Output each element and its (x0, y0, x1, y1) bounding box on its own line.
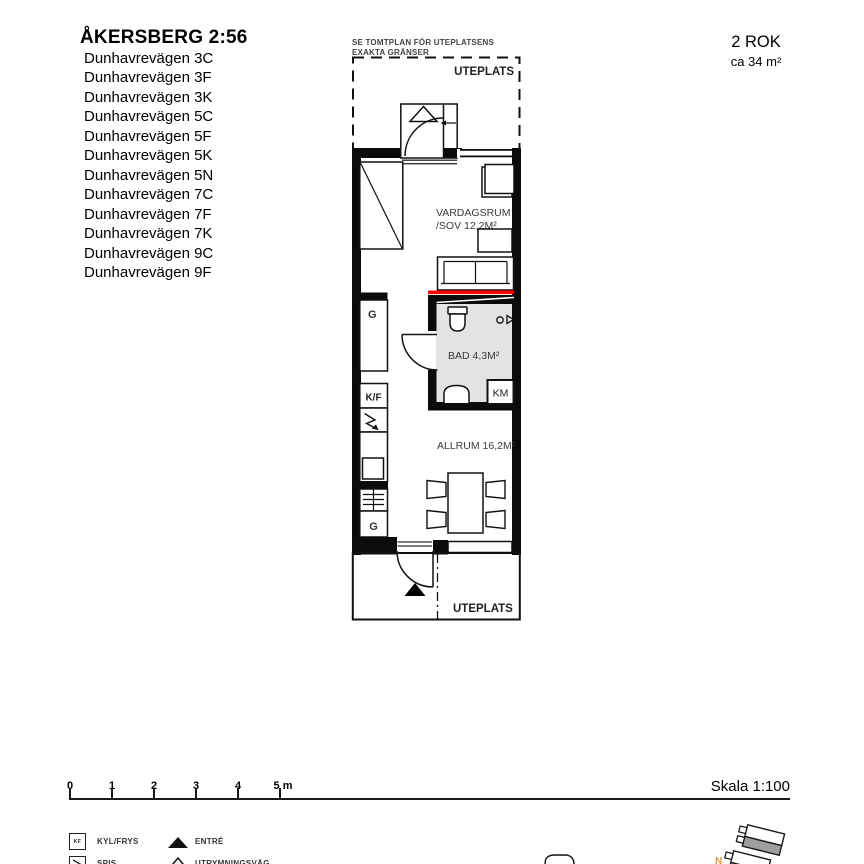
closet-lower: G (360, 511, 388, 537)
fridge-freezer: K/F (360, 384, 388, 409)
scale-tick-label: 1 (99, 780, 125, 792)
coffee-table (478, 229, 512, 252)
address-item: Dunhavrevägen 7K (84, 224, 213, 243)
scale-bar-line (70, 798, 790, 800)
address-item: Dunhavrevägen 5F (84, 127, 213, 146)
dishwasher (360, 489, 388, 511)
legend-label-entre: ENTRÉ (195, 837, 224, 846)
site-note-line1: SE TOMTPLAN FÖR UTEPLATSENS (352, 38, 494, 47)
bathroom-door (402, 335, 438, 371)
address-item: Dunhavrevägen 5N (84, 166, 213, 185)
apartment-area: ca 34 m² (706, 54, 806, 69)
kylfrys-icon-text: KF (74, 839, 82, 845)
address-item: Dunhavrevägen 7F (84, 205, 213, 224)
floorplan-page: ÅKERSBERG 2:56 Dunhavrevägen 3C Dunhavre… (0, 0, 864, 864)
kylfrys-icon: KF (69, 833, 86, 850)
apartment-type: 2 ROK (706, 33, 806, 52)
floor-plan: SE TOMTPLAN FÖR UTEPLATSENS EXAKTA GRÄNS… (335, 30, 535, 630)
fridge-label: K/F (365, 393, 381, 404)
legend-label-utrymningsvag: UTRYMNINGSVÄG (195, 859, 270, 864)
address-item: Dunhavrevägen 5K (84, 146, 213, 165)
scale-tick-label: 4 (225, 780, 251, 792)
closet-lower-label: G (369, 521, 378, 533)
entry-door (397, 551, 433, 587)
page-title: ÅKERSBERG 2:56 (80, 27, 248, 49)
scale-tick-label: 5 m (270, 780, 296, 792)
km-label: KM (493, 388, 509, 400)
uteplats-bottom-label: UTEPLATS (453, 603, 513, 615)
closet-upper: G (360, 300, 388, 371)
vardagsrum-label-line1: VARDAGSRUM (436, 207, 510, 219)
chair (486, 481, 505, 499)
address-list: Dunhavrevägen 3C Dunhavrevägen 3F Dunhav… (84, 49, 213, 282)
washing-machine: KM (488, 380, 514, 404)
interior-wall (352, 481, 388, 489)
scale-tick-label: 3 (183, 780, 209, 792)
site-plan-thumbnail: N (540, 818, 864, 864)
stove (360, 408, 388, 432)
legend-label-kylfrys: KYL/FRYS (97, 837, 139, 846)
chair (486, 511, 505, 529)
address-item: Dunhavrevägen 7C (84, 185, 213, 204)
site-note-line2: EXAKTA GRÄNSER (352, 48, 429, 57)
bad-label: BAD 4,3M² (448, 350, 500, 362)
bed (360, 162, 403, 249)
sink-icon (444, 386, 469, 404)
dining-table-set (427, 473, 505, 533)
address-item: Dunhavrevägen 3F (84, 68, 213, 87)
legend-label-spis: SPIS (97, 859, 116, 864)
bathroom: BAD 4,3M² KM (402, 295, 521, 411)
address-item: Dunhavrevägen 9C (84, 244, 213, 263)
uteplats-bottom: UTEPLATS (353, 553, 520, 620)
toilet-icon (448, 307, 467, 331)
scale-label: Skala 1:100 (690, 778, 790, 795)
address-item: Dunhavrevägen 9F (84, 263, 213, 282)
kitchen-sink-icon (363, 458, 384, 479)
dining-table (448, 473, 483, 533)
bottom-window (448, 542, 512, 553)
address-item: Dunhavrevägen 3K (84, 88, 213, 107)
chair (427, 511, 446, 529)
entre-icon (168, 837, 188, 848)
allrum-label: ALLRUM 16,2M² (437, 440, 516, 452)
scale-tick-label: 2 (141, 780, 167, 792)
sofa (438, 257, 514, 290)
uteplats-top-label: UTEPLATS (454, 66, 514, 78)
side-table (482, 165, 514, 198)
apartment-info: 2 ROK ca 34 m² (706, 33, 806, 69)
kitchen-counter (360, 432, 388, 482)
chair (427, 481, 446, 499)
spis-icon (69, 856, 86, 864)
site-building (736, 823, 785, 855)
scale-tick-label: 0 (57, 780, 83, 792)
address-item: Dunhavrevägen 3C (84, 49, 213, 68)
escape-route-marking (428, 291, 514, 295)
closet-upper-label: G (368, 309, 377, 321)
site-road-shape (545, 855, 574, 864)
address-item: Dunhavrevägen 5C (84, 107, 213, 126)
north-label: N (715, 856, 722, 864)
utrymningsvag-icon (167, 857, 189, 864)
